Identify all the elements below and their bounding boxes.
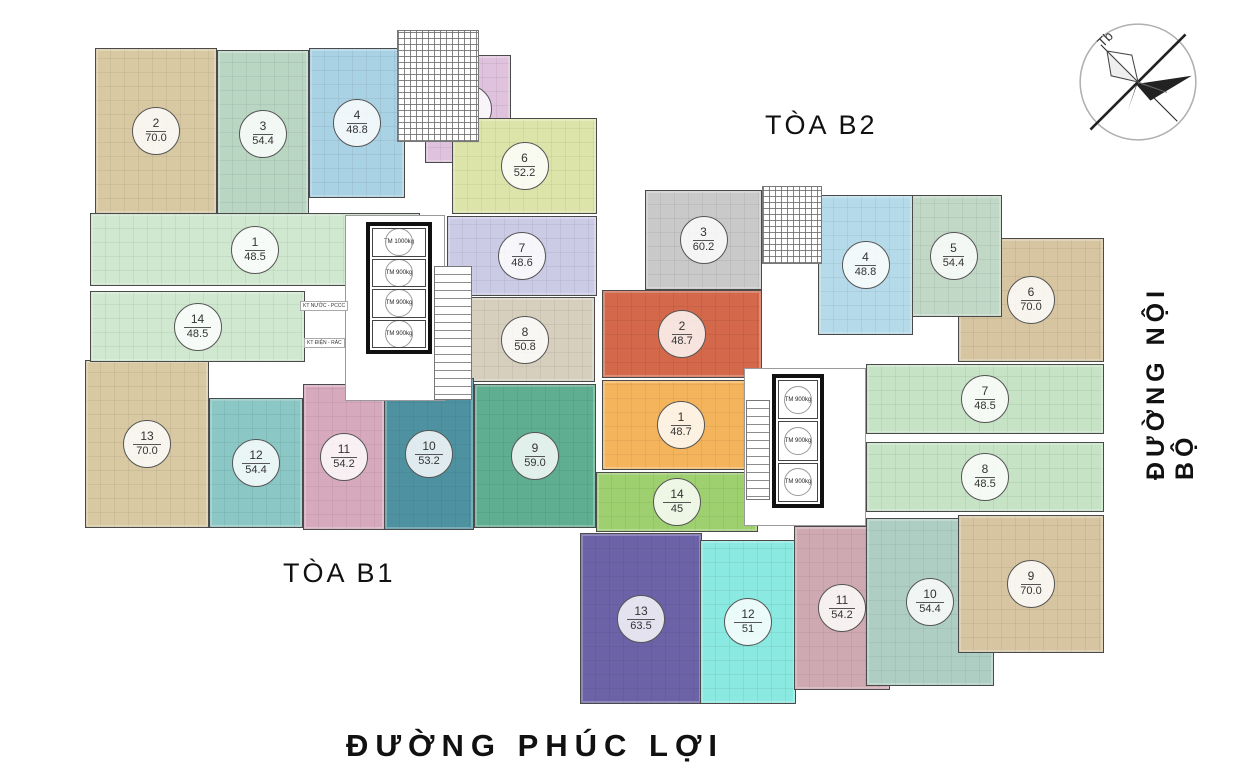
road-label-duong-phuc-loi: ĐƯỜNG PHÚC LỢI — [300, 728, 770, 764]
unit-number-area-label: 652.2 — [501, 142, 549, 190]
elevator-shaft-b2: TM 900kgTM 900kgTM 900kg — [772, 374, 824, 508]
unit-b1-2[interactable]: 270.0 — [95, 48, 217, 214]
unit-number-area-label: 850.8 — [501, 316, 549, 364]
unit-b2-12[interactable]: 1251 — [700, 540, 796, 704]
unit-b2-5[interactable]: 554.4 — [905, 195, 1002, 317]
unit-b2-3[interactable]: 360.2 — [645, 190, 762, 290]
unit-b1-12[interactable]: 1254.4 — [209, 398, 303, 528]
unit-number: 10 — [415, 440, 442, 455]
elevator-cell: TM 900kg — [778, 380, 818, 419]
unit-number: 2 — [672, 320, 693, 335]
unit-number-area-label: 1448.5 — [174, 303, 222, 351]
elevator-cell: TM 900kg — [372, 289, 426, 318]
unit-area: 54.4 — [252, 135, 273, 148]
unit-number-area-label: 1445 — [653, 478, 701, 526]
unit-number: 8 — [515, 326, 536, 341]
unit-number-area-label: 748.5 — [961, 375, 1009, 423]
unit-number: 4 — [347, 109, 368, 124]
unit-number-area-label: 970.0 — [1007, 560, 1055, 608]
elevator-cell: TM 900kg — [372, 259, 426, 288]
unit-number: 5 — [943, 242, 964, 257]
unit-number-area-label: 1370.0 — [123, 420, 171, 468]
unit-b2-14[interactable]: 1445 — [596, 472, 758, 532]
unit-b2-13[interactable]: 1363.5 — [580, 533, 702, 704]
compass-letter: Tb — [1094, 28, 1116, 50]
staircase-b1 — [434, 266, 472, 400]
unit-number: 12 — [734, 608, 761, 623]
unit-number: 9 — [525, 442, 546, 457]
unit-area: 52.2 — [514, 167, 535, 180]
unit-b2-7[interactable]: 748.5 — [866, 364, 1104, 434]
unit-number: 10 — [916, 588, 943, 603]
unit-number: 6 — [1021, 286, 1042, 301]
unit-area: 48.8 — [346, 124, 367, 137]
unit-area: 60.2 — [693, 241, 714, 254]
unit-b1-14[interactable]: 1448.5 — [90, 291, 305, 362]
unit-area: 50.8 — [514, 341, 535, 354]
elevator-cell: TM 900kg — [372, 320, 426, 349]
floor-plan-canvas: TÒA B2 TÒA B1 ĐƯỜNG NỘI BỘ ĐƯỜNG PHÚC LỢ… — [0, 0, 1250, 781]
unit-area: 54.4 — [919, 603, 940, 616]
unit-number-area-label: 148.7 — [657, 401, 705, 449]
unit-number-area-label: 959.0 — [511, 432, 559, 480]
unit-area: 63.5 — [630, 620, 651, 633]
stair-hatch-b1 — [397, 30, 479, 142]
unit-number-area-label: 360.2 — [680, 216, 728, 264]
unit-area: 70.0 — [1020, 301, 1041, 314]
unit-area: 70.0 — [136, 445, 157, 458]
unit-area: 70.0 — [1020, 585, 1041, 598]
unit-b1-3[interactable]: 354.4 — [217, 50, 309, 218]
unit-number-area-label: 748.6 — [498, 232, 546, 280]
unit-area: 48.6 — [511, 257, 532, 270]
unit-area: 48.8 — [855, 266, 876, 279]
unit-number-area-label: 448.8 — [842, 241, 890, 289]
unit-b1-4[interactable]: 448.8 — [309, 48, 405, 198]
unit-number-area-label: 554.4 — [930, 232, 978, 280]
unit-number: 7 — [975, 385, 996, 400]
elevator-cell: TM 900kg — [778, 421, 818, 460]
unit-number: 13 — [627, 605, 654, 620]
unit-number-area-label: 1363.5 — [617, 595, 665, 643]
unit-b2-1[interactable]: 148.7 — [602, 380, 760, 470]
unit-number-area-label: 1054.4 — [906, 578, 954, 626]
building-b2-label: TÒA B2 — [765, 110, 935, 141]
unit-area: 48.7 — [670, 426, 691, 439]
unit-number: 11 — [829, 594, 855, 609]
unit-area: 48.7 — [671, 335, 692, 348]
unit-b1-13[interactable]: 1370.0 — [85, 360, 209, 528]
unit-number-area-label: 270.0 — [132, 107, 180, 155]
unit-number: 2 — [146, 117, 167, 132]
elevator-cell: TM 900kg — [778, 463, 818, 502]
unit-number: 11 — [331, 443, 357, 458]
unit-area: 48.5 — [244, 251, 265, 264]
unit-number-area-label: 1254.4 — [232, 439, 280, 487]
unit-number: 3 — [693, 226, 714, 241]
unit-area: 54.2 — [333, 458, 354, 471]
unit-area: 53.2 — [418, 455, 439, 468]
unit-number: 14 — [663, 488, 690, 503]
compass-north-icon: Tb — [1076, 20, 1200, 144]
building-b1-label: TÒA B1 — [283, 558, 453, 589]
unit-number: 4 — [855, 251, 876, 266]
unit-area: 48.5 — [974, 478, 995, 491]
unit-area: 59.0 — [524, 457, 545, 470]
technical-room-label: KT ĐIỆN - RÁC — [304, 338, 345, 348]
unit-number-area-label: 670.0 — [1007, 276, 1055, 324]
unit-area: 48.5 — [187, 328, 208, 341]
elevator-shaft-b1: TM 1000kgTM 900kgTM 900kgTM 900kg — [366, 222, 432, 354]
unit-number: 12 — [242, 449, 269, 464]
unit-number: 14 — [184, 313, 211, 328]
unit-b1-9[interactable]: 959.0 — [474, 384, 596, 528]
unit-number: 3 — [253, 120, 274, 135]
unit-area: 54.4 — [245, 464, 266, 477]
unit-number: 7 — [512, 242, 533, 257]
unit-number-area-label: 448.8 — [333, 99, 381, 147]
unit-area: 51 — [742, 623, 754, 636]
unit-number: 1 — [671, 411, 692, 426]
unit-number-area-label: 1154.2 — [818, 584, 866, 632]
unit-number-area-label: 248.7 — [658, 310, 706, 358]
unit-number-area-label: 1154.2 — [320, 433, 368, 481]
staircase-b2 — [746, 400, 770, 500]
unit-area: 48.5 — [974, 400, 995, 413]
unit-number-area-label: 354.4 — [239, 110, 287, 158]
unit-area: 54.4 — [943, 257, 964, 270]
unit-number-area-label: 148.5 — [231, 226, 279, 274]
compass-main-arrow — [1136, 76, 1192, 101]
unit-number: 6 — [514, 152, 535, 167]
unit-area: 70.0 — [145, 132, 166, 145]
elevator-cell: TM 1000kg — [372, 228, 426, 257]
unit-number: 1 — [245, 236, 266, 251]
unit-number: 13 — [133, 430, 160, 445]
technical-room-label: KT NƯỚC - PCCC — [300, 301, 348, 311]
stair-hatch-b2 — [762, 186, 822, 264]
unit-number: 8 — [975, 463, 996, 478]
unit-number: 9 — [1021, 570, 1042, 585]
unit-b1-11[interactable]: 1154.2 — [303, 384, 385, 530]
unit-number-area-label: 848.5 — [961, 453, 1009, 501]
unit-b2-2[interactable]: 248.7 — [602, 290, 762, 378]
unit-area: 54.2 — [831, 609, 852, 622]
unit-b1-8[interactable]: 850.8 — [455, 297, 595, 382]
unit-b2-4[interactable]: 448.8 — [818, 195, 913, 335]
road-label-duong-noi-bo: ĐƯỜNG NỘI BỘ — [1142, 260, 1200, 480]
unit-b2-9[interactable]: 970.0 — [958, 515, 1104, 653]
unit-number-area-label: 1053.2 — [405, 430, 453, 478]
unit-number-area-label: 1251 — [724, 598, 772, 646]
unit-b2-8[interactable]: 848.5 — [866, 442, 1104, 512]
unit-area: 45 — [671, 503, 683, 516]
